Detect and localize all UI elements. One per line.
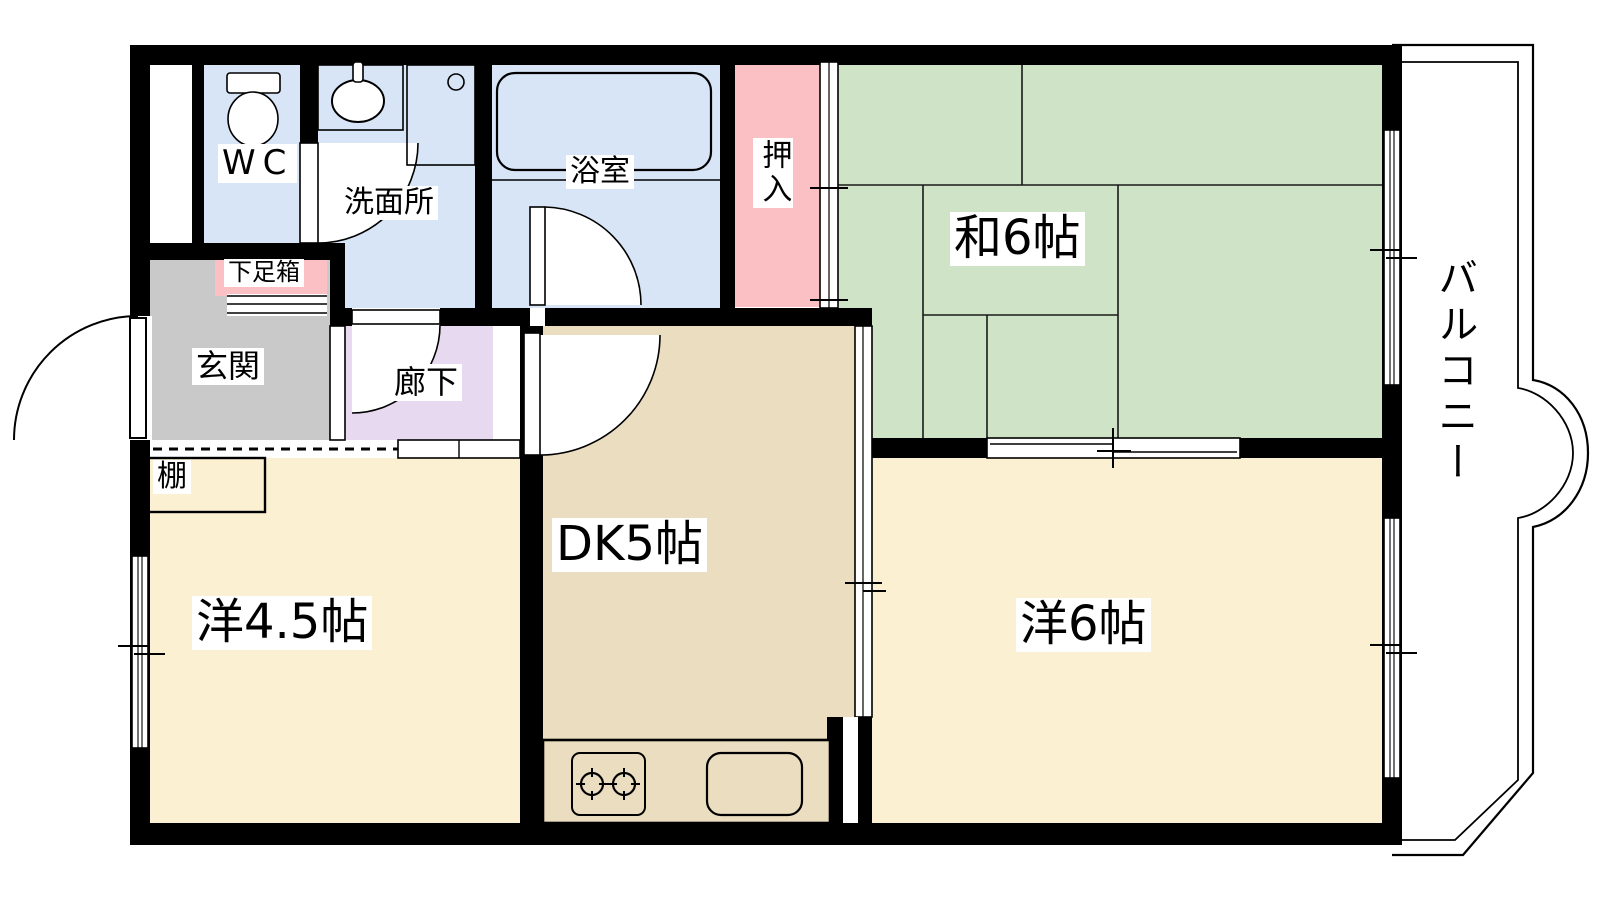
toilet-bowl-icon xyxy=(228,92,278,146)
bathroom-door-leaf xyxy=(530,207,545,305)
window-west45 xyxy=(132,556,148,748)
wall-bathroom-closet xyxy=(720,45,735,308)
label-japanese-room: 和6帖 xyxy=(950,212,1085,266)
entrance-door-leaf xyxy=(130,318,146,438)
toilet-tank-icon xyxy=(227,73,280,93)
wall-japanese-west6-left xyxy=(872,438,987,458)
wall-japanese-west6-right xyxy=(1240,438,1382,458)
balcony-inner-line xyxy=(1392,62,1573,840)
label-closet: 押入 xyxy=(753,138,793,208)
label-dining-kitchen: DK5帖 xyxy=(552,518,707,572)
room-japanese-upper xyxy=(838,65,1382,325)
pipe-space xyxy=(150,65,192,243)
floor-plan: WC 洗面所 浴室 押入 和6帖 下足箱 玄関 廊下 棚 洋4.5帖 DK5帖 … xyxy=(0,0,1600,900)
label-shelf: 棚 xyxy=(153,460,191,494)
window-west6 xyxy=(1384,518,1400,778)
entrance-door-swing xyxy=(14,316,138,440)
washroom-door-leaf xyxy=(352,310,440,324)
basin-icon xyxy=(332,80,384,122)
label-western-room-6: 洋6帖 xyxy=(1016,598,1151,652)
bathroom-door-opening xyxy=(530,308,545,326)
wc-door-leaf xyxy=(300,143,318,243)
label-wc: WC xyxy=(218,144,297,183)
label-entrance: 玄関 xyxy=(192,348,264,385)
wall-top xyxy=(130,45,1392,65)
room-japanese-lower xyxy=(872,325,1382,438)
pocket-door-slot xyxy=(843,717,858,823)
dk-door-leaf xyxy=(524,333,540,455)
balcony-outer-line xyxy=(1392,45,1588,855)
label-washroom: 洗面所 xyxy=(340,186,438,220)
basin-tap-icon xyxy=(353,62,363,82)
entrance-hallway-door xyxy=(330,326,345,440)
label-shoe-cabinet: 下足箱 xyxy=(224,259,304,287)
wall-bottom xyxy=(130,823,1392,845)
balcony-outline xyxy=(1392,45,1588,855)
floor-plan-drawing xyxy=(0,0,1600,900)
hallway-vestibule xyxy=(493,326,520,458)
wall-washroom-bathroom xyxy=(475,45,492,308)
label-bathroom: 浴室 xyxy=(566,155,634,189)
label-western-room-45: 洋4.5帖 xyxy=(192,596,372,650)
label-hallway: 廊下 xyxy=(390,364,462,401)
label-balcony: バルコニー xyxy=(1428,256,1479,488)
wall-pipe-wc xyxy=(192,65,204,243)
